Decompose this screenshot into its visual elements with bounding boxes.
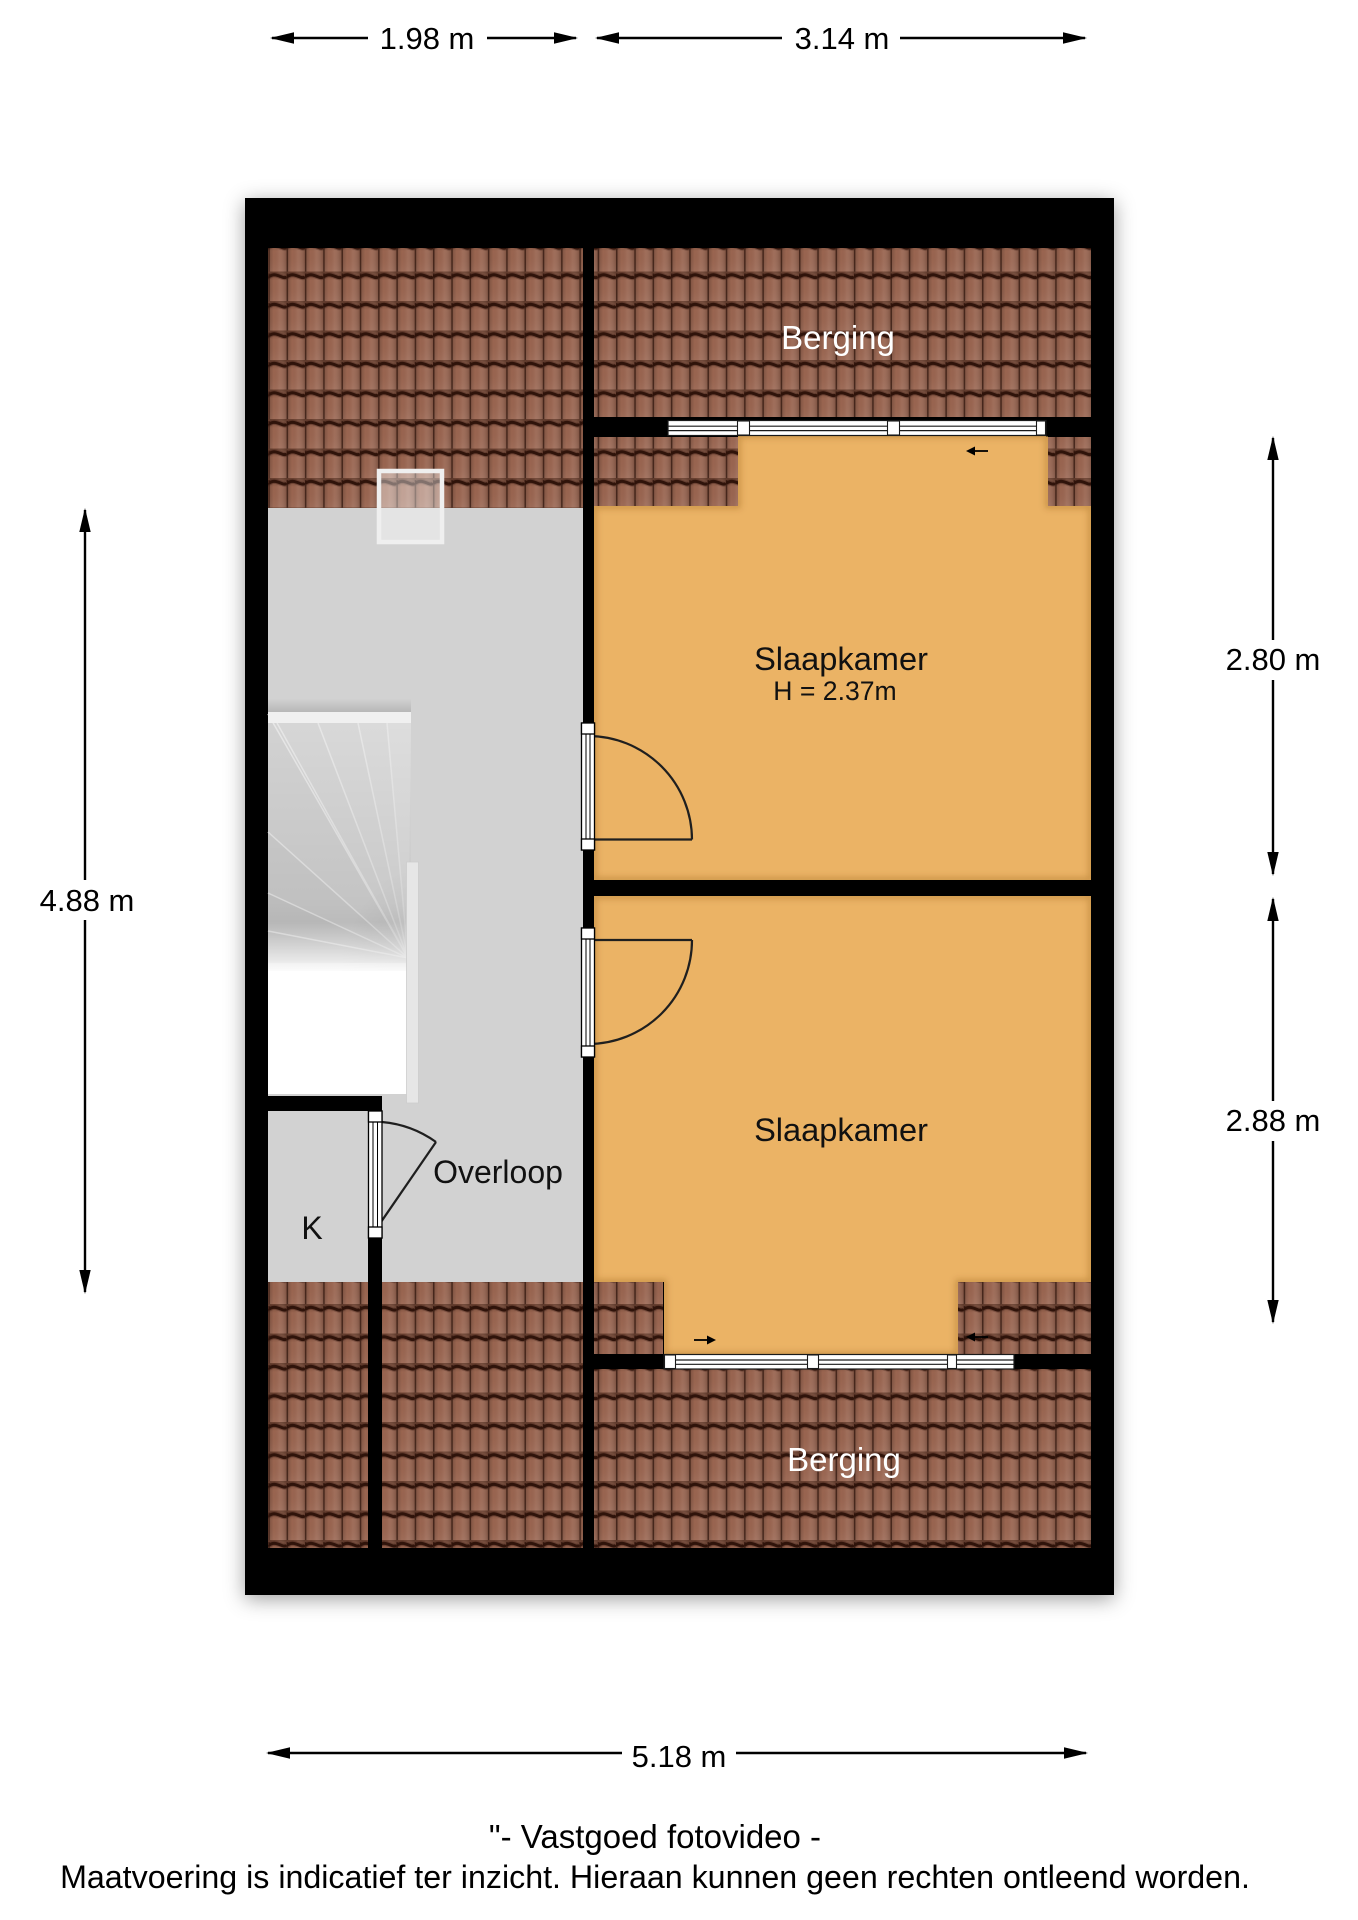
svg-text:K: K [301,1210,322,1246]
svg-text:"- Vastgoed fotovideo -: "- Vastgoed fotovideo - [489,1818,821,1855]
svg-text:2.80 m: 2.80 m [1226,642,1321,677]
svg-text:3.14 m: 3.14 m [795,21,890,56]
svg-text:Maatvoering is indicatief ter: Maatvoering is indicatief ter inzicht. H… [60,1859,1250,1895]
svg-text:4.88 m: 4.88 m [40,883,135,918]
svg-text:Berging: Berging [787,1441,901,1478]
svg-text:Slaapkamer: Slaapkamer [754,640,928,677]
svg-text:H = 2.37m: H = 2.37m [773,676,896,706]
svg-text:2.88 m: 2.88 m [1226,1103,1321,1138]
svg-text:Berging: Berging [781,319,895,356]
svg-text:Slaapkamer: Slaapkamer [754,1111,928,1148]
svg-text:Overloop: Overloop [433,1154,563,1190]
svg-text:1.98 m: 1.98 m [380,21,475,56]
svg-text:5.18 m: 5.18 m [632,1739,727,1774]
